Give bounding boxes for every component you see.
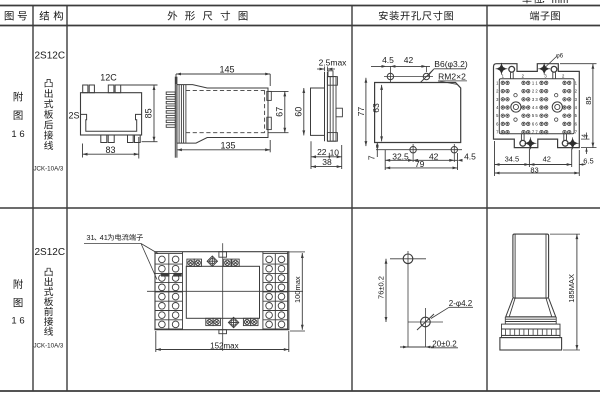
svg-text:135: 135 <box>220 140 235 150</box>
svg-text:2-φ4.2: 2-φ4.2 <box>449 299 473 308</box>
svg-text:38: 38 <box>322 157 332 167</box>
svg-text:4.5: 4.5 <box>382 55 394 65</box>
svg-text:1 1: 1 1 <box>532 80 538 85</box>
svg-text:RM2×2: RM2×2 <box>438 71 466 81</box>
svg-text:67: 67 <box>275 107 285 117</box>
svg-text:6 6: 6 6 <box>532 121 538 126</box>
svg-text:10: 10 <box>330 147 340 157</box>
svg-text:φ6: φ6 <box>556 54 564 60</box>
svg-text:1 6: 1 6 <box>11 316 24 327</box>
svg-text:2S12C: 2S12C <box>35 51 66 62</box>
svg-text:42: 42 <box>543 154 551 163</box>
svg-text:4 4: 4 4 <box>532 105 538 110</box>
svg-text:：: ： <box>541 0 551 5</box>
svg-text:2S: 2S <box>68 111 79 121</box>
svg-text:77: 77 <box>356 107 366 117</box>
svg-text:4: 4 <box>581 134 588 138</box>
svg-text:31: 31 <box>86 233 94 242</box>
svg-text:42: 42 <box>429 151 439 161</box>
svg-text:145: 145 <box>219 65 234 75</box>
svg-text:79: 79 <box>415 159 425 169</box>
svg-text:7: 7 <box>367 155 377 160</box>
svg-text:185MAX: 185MAX <box>567 274 576 303</box>
svg-text:100max: 100max <box>293 276 302 303</box>
svg-text:152max: 152max <box>210 341 238 350</box>
svg-text:B6(φ3.2): B6(φ3.2) <box>434 59 468 69</box>
svg-text:JCK-10A/3: JCK-10A/3 <box>33 343 63 350</box>
svg-text:42: 42 <box>404 55 414 65</box>
svg-text:20±0.2: 20±0.2 <box>432 340 457 349</box>
svg-text:6.5: 6.5 <box>583 156 593 165</box>
svg-text:60: 60 <box>294 107 304 117</box>
svg-text:12C: 12C <box>100 73 117 83</box>
svg-text:2 2: 2 2 <box>532 89 538 94</box>
svg-text:22: 22 <box>317 147 327 157</box>
svg-text:63: 63 <box>371 103 381 113</box>
svg-text:1 6: 1 6 <box>11 129 24 140</box>
svg-text:3 3: 3 3 <box>532 97 538 102</box>
svg-text:83: 83 <box>530 166 538 175</box>
svg-text:83: 83 <box>105 145 115 155</box>
svg-text:76±0.2: 76±0.2 <box>377 276 386 299</box>
svg-text:5 5: 5 5 <box>532 113 538 118</box>
svg-text:85: 85 <box>584 96 593 104</box>
svg-text:mm: mm <box>552 0 569 6</box>
svg-text:34.5: 34.5 <box>505 154 520 163</box>
svg-text:7 7: 7 7 <box>532 130 538 135</box>
svg-text:2.5max: 2.5max <box>319 58 348 68</box>
svg-text:32.5: 32.5 <box>392 151 409 161</box>
svg-text:JCK-10A/3: JCK-10A/3 <box>33 166 63 173</box>
svg-text:85: 85 <box>144 108 154 118</box>
svg-text:41: 41 <box>100 233 108 242</box>
svg-text:4.5: 4.5 <box>464 151 476 161</box>
svg-text:2S12C: 2S12C <box>35 247 66 258</box>
